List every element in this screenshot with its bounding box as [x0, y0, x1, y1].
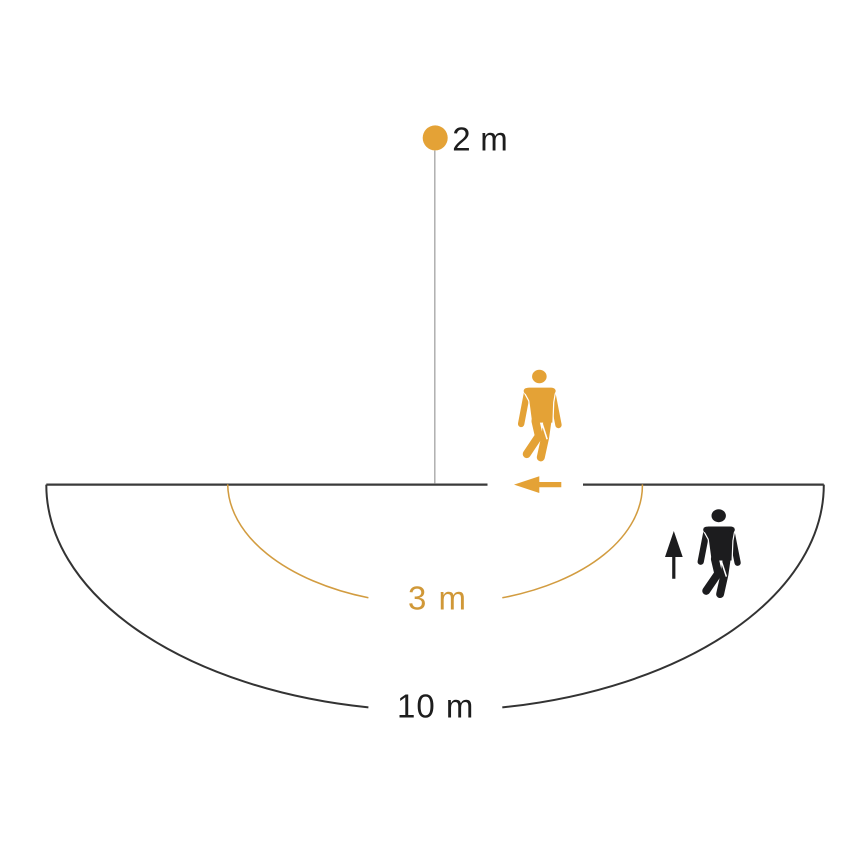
- svg-text:10 m: 10 m: [397, 688, 474, 725]
- svg-text:2 m: 2 m: [452, 120, 508, 157]
- svg-text:3 m: 3 m: [408, 580, 468, 617]
